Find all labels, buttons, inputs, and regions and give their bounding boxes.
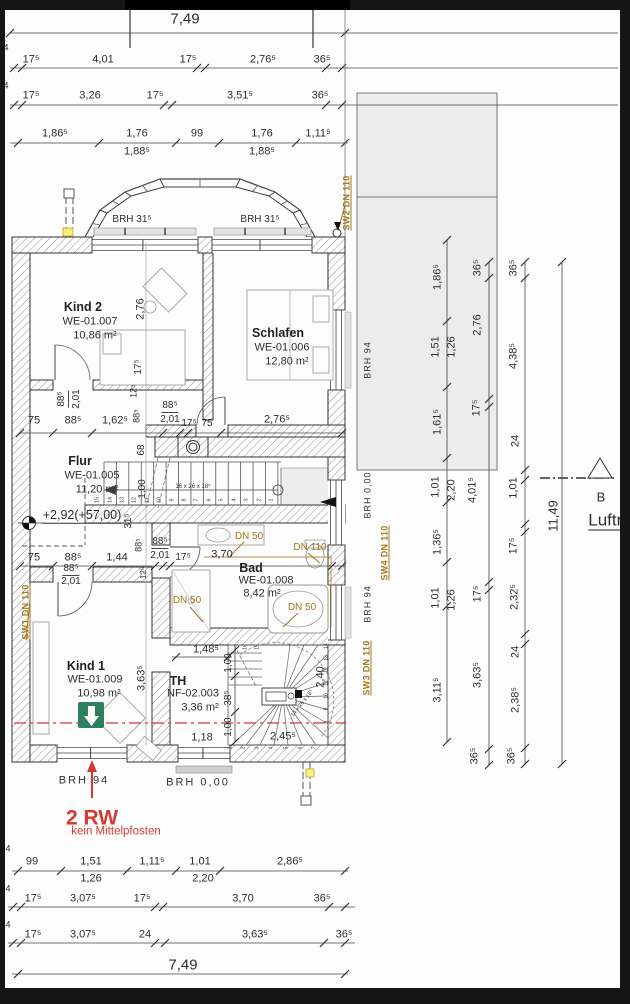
stair-tread-number: 2 — [257, 498, 263, 501]
dim-label: 12⁵ — [140, 567, 148, 579]
dim-label: 2,01 — [160, 415, 179, 425]
room-schlafen-area: 12,80 m² — [265, 357, 308, 368]
emergency-exit-icon — [78, 702, 104, 728]
stair-tread-number: 7 — [195, 498, 201, 501]
stair-tread-number: 8 — [182, 498, 188, 501]
room-kind1-code: WE-01.009 — [67, 675, 122, 686]
brh-schlafen-window: BRH 94 — [364, 341, 373, 379]
dim-total-height: 11,49 — [547, 500, 560, 532]
dim-label: 17⁵ — [25, 930, 42, 941]
dim-label: 1,26 — [80, 874, 101, 885]
dim-label: 75 — [201, 419, 212, 429]
dim-label: 17⁵ — [23, 55, 40, 66]
dim-label: 2,01 — [61, 577, 80, 587]
label-sw3: SW3 DN 110 — [363, 640, 372, 695]
section-marker-b: B — [597, 491, 606, 504]
dim-label: 88⁵ — [65, 553, 82, 564]
dim-label: 4,01 — [92, 55, 113, 66]
dim-label: 17⁵ — [472, 400, 483, 417]
dim-label: 1,00 — [138, 479, 148, 498]
dim-label: 24 — [139, 930, 151, 941]
stair-tread-number: 3 — [244, 498, 250, 501]
dim-label: 1,86⁵ — [42, 129, 68, 140]
dim-label: 2,20 — [447, 479, 458, 500]
room-kind1-name: Kind 1 — [67, 660, 105, 673]
stair-tread-number: 12 — [325, 667, 330, 673]
stair-tread-number: 14 — [108, 497, 114, 503]
dim-label: 3,07⁵ — [70, 930, 96, 941]
dim-label: 99 — [26, 857, 38, 868]
dim-label: 17⁵ — [509, 538, 520, 555]
brh-bad-window: BRH 94 — [364, 585, 373, 623]
label-dn110-wc: DN 110 — [293, 543, 326, 553]
dim-label: 17⁵ — [23, 91, 40, 102]
brh-bay-left: BRH 31⁵ — [112, 215, 151, 225]
stair-tread-number: 12 — [133, 497, 139, 503]
dim-label: 3,63⁵ — [242, 930, 268, 941]
dim-label: 4 — [5, 921, 10, 930]
stair-tread-number: 2 — [242, 747, 247, 750]
level-annotation: +2,92(+57,00) — [43, 509, 122, 524]
dim-label: 3,26 — [79, 91, 100, 102]
stair-tread-number: 13 — [325, 655, 330, 661]
dim-label: 38⁵ — [224, 690, 234, 705]
floorplan-sheet: 7,49417⁵4,0117⁵2,76⁵36⁵417⁵3,2617⁵3,51⁵3… — [0, 0, 630, 1004]
dim-label: 1,48⁵ — [193, 645, 219, 656]
dim-label: 3,63⁵ — [137, 665, 148, 691]
stair-tread-number: 14 — [325, 643, 330, 649]
dim-label: 31⁵ — [124, 513, 134, 528]
dim-label: 99 — [191, 129, 203, 140]
stair-tread-number: 15 — [256, 644, 261, 650]
room-bad-code: WE-01.008 — [238, 576, 293, 587]
label-dn50-tub: DN 50 — [288, 603, 316, 613]
room-flur-name: Flur — [68, 455, 92, 468]
dim-label: 1,11⁵ — [305, 129, 330, 140]
dim-label: 1,51 — [80, 857, 101, 868]
dim-label: 2,20 — [192, 874, 213, 885]
dim-label: 2,32⁵ — [510, 584, 521, 610]
dim-label: 36⁵ — [314, 55, 331, 66]
dim-label: 2,76 — [136, 298, 147, 319]
brh-landing: BRH 0,00 — [364, 471, 373, 518]
room-flur-code: WE-01.005 — [64, 471, 119, 482]
dim-label: 3,70 — [232, 894, 253, 905]
dim-total-width-bottom: 7,49 — [168, 958, 197, 973]
label-sw1: SW1 DN 110 — [22, 584, 31, 639]
dim-label: 17⁵ — [25, 894, 42, 905]
dim-label: 1,01 — [431, 587, 442, 608]
stair-tread-number: 10 — [325, 693, 330, 699]
dim-label: 36⁵ — [509, 260, 520, 277]
dim-label: 17⁵ — [134, 894, 151, 905]
dim-label: 1,00 — [224, 717, 234, 736]
dim-label: 4,38⁵ — [509, 343, 520, 369]
room-schlafen-code: WE-01.006 — [254, 343, 309, 354]
dim-label: 2,38⁵ — [511, 687, 522, 713]
dim-label: 17⁵ — [175, 553, 190, 563]
dim-label: 1,61⁵ — [433, 409, 444, 435]
label-sw2: SW2 DN 110 — [343, 175, 352, 230]
dim-label: 75 — [28, 416, 40, 427]
dim-label: 2,01 — [150, 551, 169, 561]
background — [0, 0, 5, 1004]
dim-label: 1,26 — [447, 336, 458, 357]
dim-label: 88⁵ — [135, 538, 144, 552]
section-marker-b-icon — [540, 458, 614, 478]
room-kind1-area: 10,98 m² — [77, 689, 120, 700]
dim-label: 88⁵ — [161, 401, 178, 413]
stair-tread-number: 5 — [285, 747, 290, 750]
stair-note: 16 x 26 x 18⁵ — [175, 484, 210, 490]
stair-tread-number: 9 — [170, 498, 176, 501]
dim-label: 1,88⁵ — [249, 147, 275, 158]
dim-label: 24 — [511, 435, 522, 447]
stair-tread-number: 11 — [325, 680, 330, 685]
dim-label: 2,45⁵ — [270, 732, 296, 743]
dim-label: 1,86⁵ — [433, 264, 444, 290]
brh-th-window: BRH 0,00 — [166, 778, 230, 789]
dim-label: 17⁵ — [134, 359, 144, 374]
stair-tread-number: 4 — [232, 498, 238, 501]
dim-label: 1,62⁵ — [102, 416, 128, 427]
dim-label: 75 — [28, 553, 40, 564]
dim-label: 36⁵ — [470, 748, 481, 765]
room-schlafen-name: Schlafen — [252, 327, 304, 340]
dim-label: 17⁵ — [181, 419, 196, 429]
room-kind2-area: 10,86 m² — [73, 331, 116, 342]
dim-label: 88⁵ — [133, 409, 142, 423]
stair-tread-number: 6 — [299, 747, 304, 750]
dim-label: 1,76 — [126, 129, 147, 140]
dim-label: 1,11⁵ — [139, 857, 164, 868]
dim-label: 17⁵ — [180, 55, 197, 66]
room-kind2-code: WE-01.007 — [62, 317, 117, 328]
note-mittelpfosten: kein Mittelpfosten — [71, 826, 161, 838]
dim-label: 1,01 — [509, 477, 520, 498]
dim-label: 68 — [137, 444, 147, 455]
dim-label: 2,86⁵ — [277, 857, 303, 868]
dim-label: 17⁵ — [147, 91, 164, 102]
stair-tread-number: 11 — [145, 497, 151, 503]
dim-label: 24 — [511, 646, 522, 658]
dim-label: 1,01 — [189, 857, 210, 868]
dim-label: 4 — [5, 885, 10, 894]
dim-label: 88⁵ — [62, 564, 79, 576]
dim-label: 12⁵ — [130, 384, 139, 398]
dim-label: 1,26 — [447, 589, 458, 610]
dim-label: 36⁵ — [314, 894, 331, 905]
room-bad-area: 8,42 m² — [243, 589, 280, 600]
dim-total-width-top: 7,49 — [170, 12, 199, 27]
floorplan-viewport: 7,49417⁵4,0117⁵2,76⁵36⁵417⁵3,2617⁵3,51⁵3… — [0, 0, 630, 1004]
stair-tread-number: 8 — [325, 721, 330, 724]
stair-tread-number: 9 — [325, 708, 330, 711]
dim-label: 4,01⁵ — [468, 477, 479, 503]
background — [125, 0, 350, 10]
dim-label: 3,07⁵ — [70, 894, 96, 905]
stair-tread-number: 15 — [95, 497, 101, 503]
background — [0, 988, 630, 1004]
stair-tread-number: 13 — [120, 497, 126, 503]
stair-tread-number: 10 — [157, 497, 163, 503]
stair-tread-number: 1 — [229, 747, 234, 750]
dim-label: 36⁵ — [507, 748, 518, 765]
dim-label: 1,44 — [106, 553, 127, 564]
label-sw4: SW4 DN 110 — [381, 525, 390, 580]
stair-tread-number: 3 — [256, 747, 261, 750]
dim-label: 1,76 — [251, 129, 272, 140]
stair-tread-number: 5 — [220, 498, 226, 501]
dim-label: 88⁵ — [151, 537, 168, 549]
room-th-name: TH — [170, 675, 187, 688]
brh-bay-right: BRH 31⁵ — [240, 215, 279, 225]
room-bad-name: Bad — [239, 562, 263, 575]
dim-label: 3,63⁵ — [473, 662, 484, 688]
room-th-area: 3,36 m² — [181, 703, 218, 714]
dim-label: 2,76⁵ — [264, 415, 290, 426]
dim-label: 88⁵ — [65, 416, 82, 427]
stair-tread-number: 4 — [270, 747, 275, 750]
dim-label: 1,01 — [431, 476, 442, 497]
dim-label: 3,51⁵ — [227, 91, 253, 102]
dim-label: 1,88⁵ — [124, 147, 150, 158]
stair-tread-number: 1 — [269, 498, 275, 501]
room-th-code: NF-02.003 — [167, 689, 219, 700]
dim-label: 3,70 — [211, 550, 232, 561]
background — [620, 0, 630, 1004]
dim-label: 2,01 — [72, 389, 82, 408]
dim-label: 36⁵ — [312, 91, 329, 102]
label-dn50-basin: DN 50 — [235, 532, 263, 542]
dim-label: 1,00 — [224, 653, 234, 672]
stair-tread-number: 16 — [244, 644, 249, 650]
dim-label: 1,18 — [191, 733, 212, 744]
brh-kind1-window: BRH 94 — [59, 776, 110, 787]
dim-label: 4 — [5, 845, 10, 854]
dim-label: 36⁵ — [336, 930, 353, 941]
dim-label: 1,51 — [431, 336, 442, 357]
dim-label: 36⁵ — [473, 260, 484, 277]
room-flur-area: 11,20 m² — [76, 485, 119, 496]
room-kind2-name: Kind 2 — [64, 301, 102, 314]
dim-label: 3,11⁵ — [433, 677, 444, 702]
dim-label: 17⁵ — [473, 586, 484, 603]
dim-label: 1,36⁵ — [433, 529, 444, 555]
stair-tread-number: 6 — [207, 498, 213, 501]
stair-tread-number: 7 — [313, 747, 318, 750]
dim-label: 2,76⁵ — [250, 55, 276, 66]
dim-label: 88⁵ — [57, 390, 69, 407]
dim-label: 2,76 — [473, 314, 484, 335]
label-dn50-shower: DN 50 — [173, 596, 201, 606]
